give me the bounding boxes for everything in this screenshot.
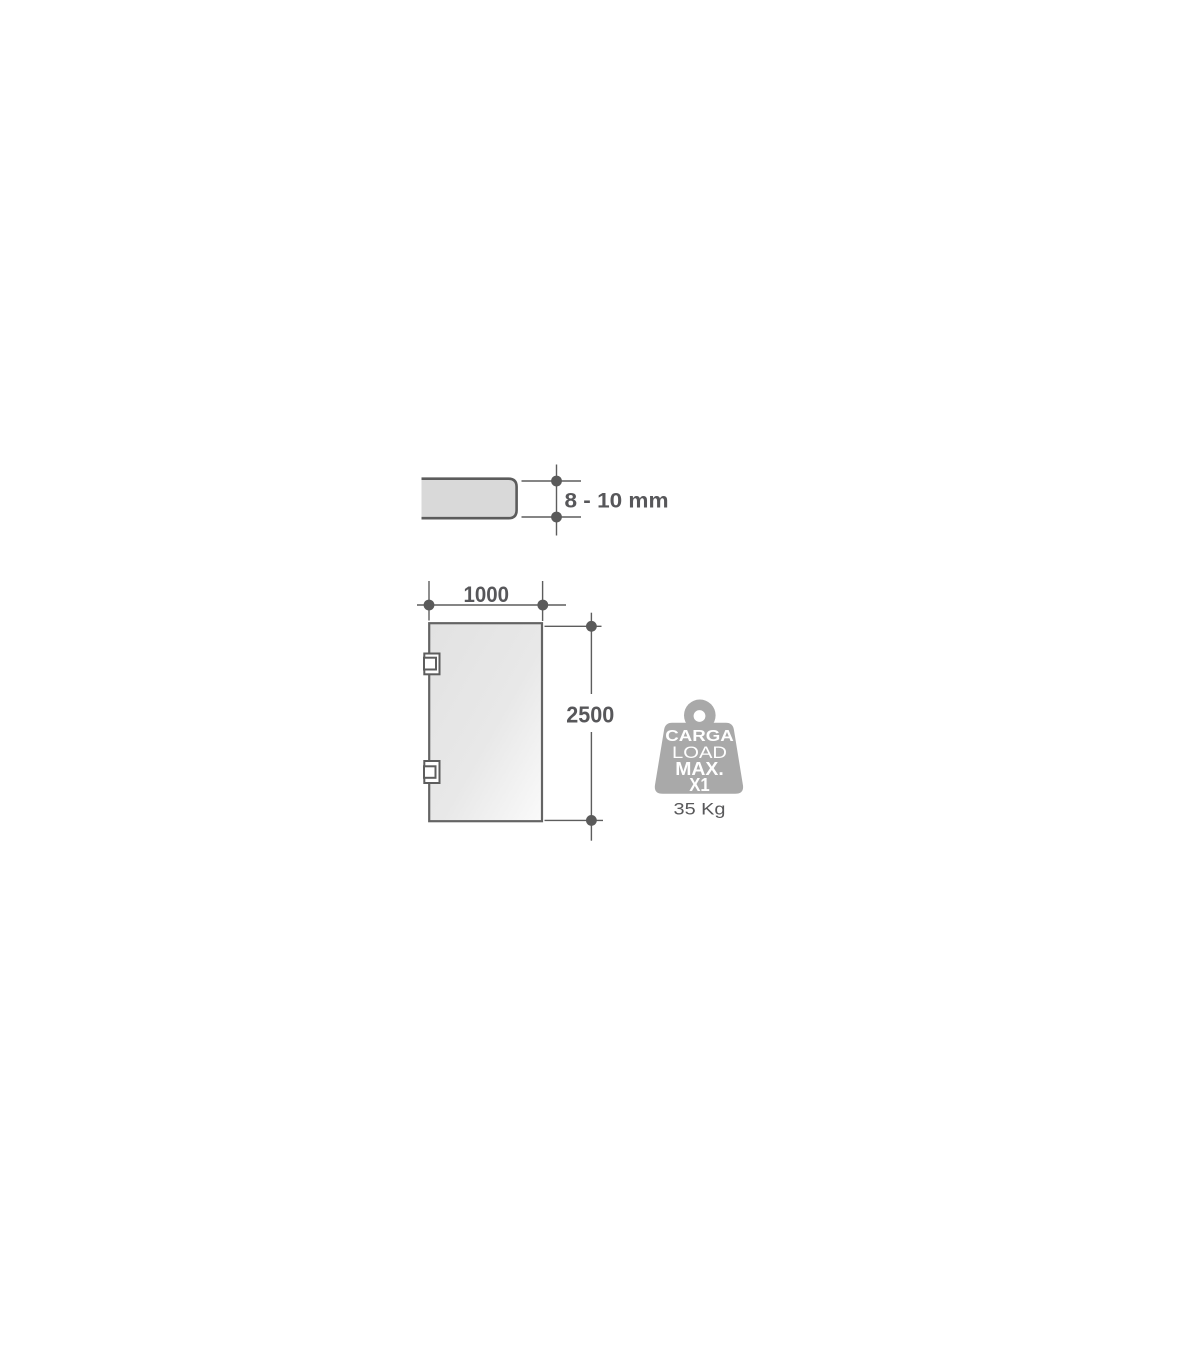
svg-text:1000: 1000	[464, 582, 510, 607]
svg-text:8 - 10 mm: 8 - 10 mm	[565, 488, 669, 513]
svg-text:2500: 2500	[566, 701, 614, 727]
svg-text:X1: X1	[689, 774, 710, 795]
svg-text:35 Kg: 35 Kg	[674, 801, 726, 819]
